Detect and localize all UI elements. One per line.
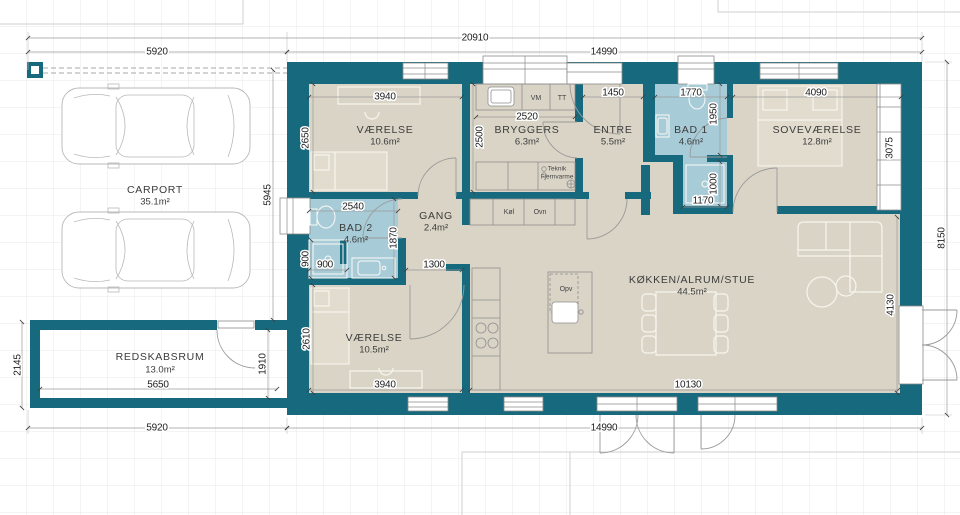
front-door-opening <box>567 63 622 84</box>
dim-bad1-height: 1950 <box>709 103 720 125</box>
room-area-vaerelse2: 10.5m² <box>359 345 389 356</box>
redskab-door-panel <box>218 321 254 328</box>
bed <box>311 152 387 190</box>
room-label-carport: CARPORT <box>127 184 183 196</box>
room-area-redskabsrum: 13.0m² <box>145 365 175 376</box>
room-area-koekken: 44.5m² <box>677 287 707 298</box>
vm-label: VM <box>531 95 542 102</box>
dim-house-depth: 8150 <box>937 227 948 249</box>
room-area-sovevaerelse: 12.8m² <box>802 137 832 148</box>
teknik-label-2: Fjernvarme <box>541 174 574 181</box>
dim-entre-width: 1450 <box>602 88 624 99</box>
car-bottom <box>62 208 250 292</box>
dim-kitchen-width: 10130 <box>675 380 702 391</box>
dim-bryggers-width: 2520 <box>516 112 538 123</box>
dim-v2-height: 2610 <box>302 328 313 350</box>
dim-v1-width: 3940 <box>374 92 396 103</box>
window-vaerelse2 <box>408 397 448 411</box>
car-top <box>62 84 250 168</box>
dim-redskab-height: 2145 <box>13 354 24 376</box>
dim-bad1-lower-width: 1170 <box>693 196 714 207</box>
room-area-bad1: 4.6m² <box>679 137 703 148</box>
room-label-bad2: BAD 2 <box>339 222 373 234</box>
room-area-bad2: 4.6m² <box>344 235 368 246</box>
bed <box>311 288 349 364</box>
dim-bad2-width: 2540 <box>342 202 364 213</box>
redskab-wall-left <box>30 320 40 408</box>
window-vaerelse1 <box>403 63 448 79</box>
dim-bad1-lower-height: 1000 <box>709 173 720 195</box>
koel-label: Køl <box>504 209 515 216</box>
dim-carport-width: 5920 <box>146 47 168 58</box>
dim-sove-width: 4090 <box>805 88 827 99</box>
room-area-carport: 35.1m² <box>140 197 170 208</box>
garden-door <box>899 306 923 384</box>
dim-shower-width: 900 <box>317 260 334 271</box>
dim-redskab-inner-height: 1910 <box>258 353 269 375</box>
tt-label: TT <box>558 95 567 102</box>
dim-gang-width: 1300 <box>423 260 445 271</box>
room-label-redskabsrum: REDSKABSRUM <box>116 351 205 363</box>
window-bad2 <box>280 198 310 234</box>
room-label-vaerelse1: VÆRELSE <box>357 124 414 136</box>
dim-bryggers-height: 2500 <box>475 126 486 148</box>
window-bad1 <box>678 56 714 84</box>
floor-plan-canvas: CARPORT 35.1m² REDSKABSRUM 13.0m² <box>0 0 960 515</box>
dim-living-height: 4130 <box>886 294 897 316</box>
dim-shower-height: 900 <box>301 250 312 267</box>
dim-house-width-bottom: 14990 <box>591 423 618 434</box>
room-label-bryggers: BRYGGERS <box>495 124 560 136</box>
redskab-wall-bottom <box>30 398 287 408</box>
dim-total-width: 20910 <box>462 33 489 44</box>
window-kitchen <box>504 397 543 411</box>
dim-redskab-width: 5650 <box>147 380 169 391</box>
room-area-gang: 2.4m² <box>424 223 448 234</box>
room-area-entre: 5.5m² <box>601 137 625 148</box>
room-label-entre: ENTRE <box>593 124 632 136</box>
dim-v2-width: 3940 <box>374 380 396 391</box>
floor-plan-drawing: CARPORT 35.1m² REDSKABSRUM 13.0m² <box>0 0 960 515</box>
dim-carport-width-bottom: 5920 <box>146 423 168 434</box>
teknik-label-1: Teknik <box>548 166 567 173</box>
room-area-bryggers: 6.3m² <box>515 137 539 148</box>
room-label-bad1: BAD 1 <box>674 124 708 136</box>
room-label-vaerelse2: VÆRELSE <box>346 332 403 344</box>
dim-wardrobe-height: 3075 <box>885 137 896 159</box>
room-label-koekken: KØKKEN/ALRUM/STUE <box>629 274 755 286</box>
dim-v1-height: 2650 <box>301 127 312 149</box>
room-area-vaerelse1: 10.6m² <box>370 137 400 148</box>
room-label-gang: GANG <box>419 210 453 222</box>
ovn-label: Ovn <box>534 209 547 216</box>
dim-carport-depth: 5945 <box>263 184 274 206</box>
opv-label: Opv <box>560 286 573 293</box>
carport-post-core <box>31 66 39 74</box>
room-label-sovevaerelse: SOVEVÆRELSE <box>773 124 862 136</box>
dim-bad2-height: 1870 <box>389 227 400 249</box>
island-sink <box>552 302 578 323</box>
dim-house-width: 14990 <box>591 47 618 58</box>
dim-bad1-width: 1770 <box>680 88 702 99</box>
